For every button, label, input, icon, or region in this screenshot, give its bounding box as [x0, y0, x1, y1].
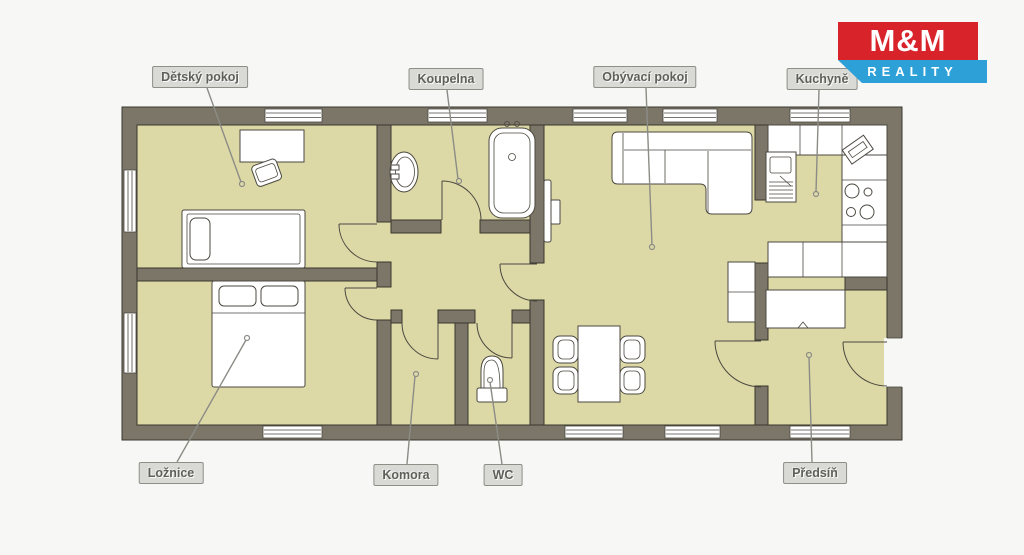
room-label-obyvaci-pokoj: Obývací pokoj: [593, 66, 696, 88]
window-icon: [263, 426, 322, 438]
dining-table: [578, 326, 620, 402]
window-icon: [665, 426, 720, 438]
wardrobe: [766, 290, 845, 328]
bathroom-sink: [390, 152, 418, 192]
floor-plan-page: Dětský pokoj Koupelna Obývací pokoj Kuch…: [0, 0, 1024, 555]
window-icon: [565, 426, 623, 438]
entrance-opening: [884, 338, 904, 387]
room-label-detsky-pokoj: Dětský pokoj: [152, 66, 248, 88]
window-icon: [428, 109, 487, 122]
agency-logo: M&M REALITY: [838, 22, 988, 84]
room-label-koupelna: Koupelna: [409, 68, 484, 90]
dining-chair: [620, 367, 645, 394]
cabinet: [728, 262, 755, 322]
single-bed: [182, 210, 305, 268]
dining-chair: [620, 336, 645, 363]
kitchen-sink: [766, 152, 796, 202]
window-icon: [790, 426, 850, 438]
double-bed: [212, 281, 305, 387]
dining-chair: [553, 367, 578, 394]
window-icon: [573, 109, 627, 122]
logo-mm-text: M&M: [838, 22, 978, 60]
window-icon: [124, 313, 136, 373]
desk: [240, 130, 304, 162]
dining-chair: [553, 336, 578, 363]
room-label-wc: WC: [484, 464, 523, 486]
window-icon: [663, 109, 717, 122]
room-label-komora: Komora: [373, 464, 438, 486]
room-label-loznice: Ložnice: [139, 462, 204, 484]
window-icon: [790, 109, 850, 122]
window-icon: [265, 109, 322, 122]
logo-reality-text: REALITY: [838, 60, 987, 83]
bathtub: [489, 122, 535, 219]
window-icon: [124, 170, 136, 232]
room-label-predsin: Předsíň: [783, 462, 847, 484]
